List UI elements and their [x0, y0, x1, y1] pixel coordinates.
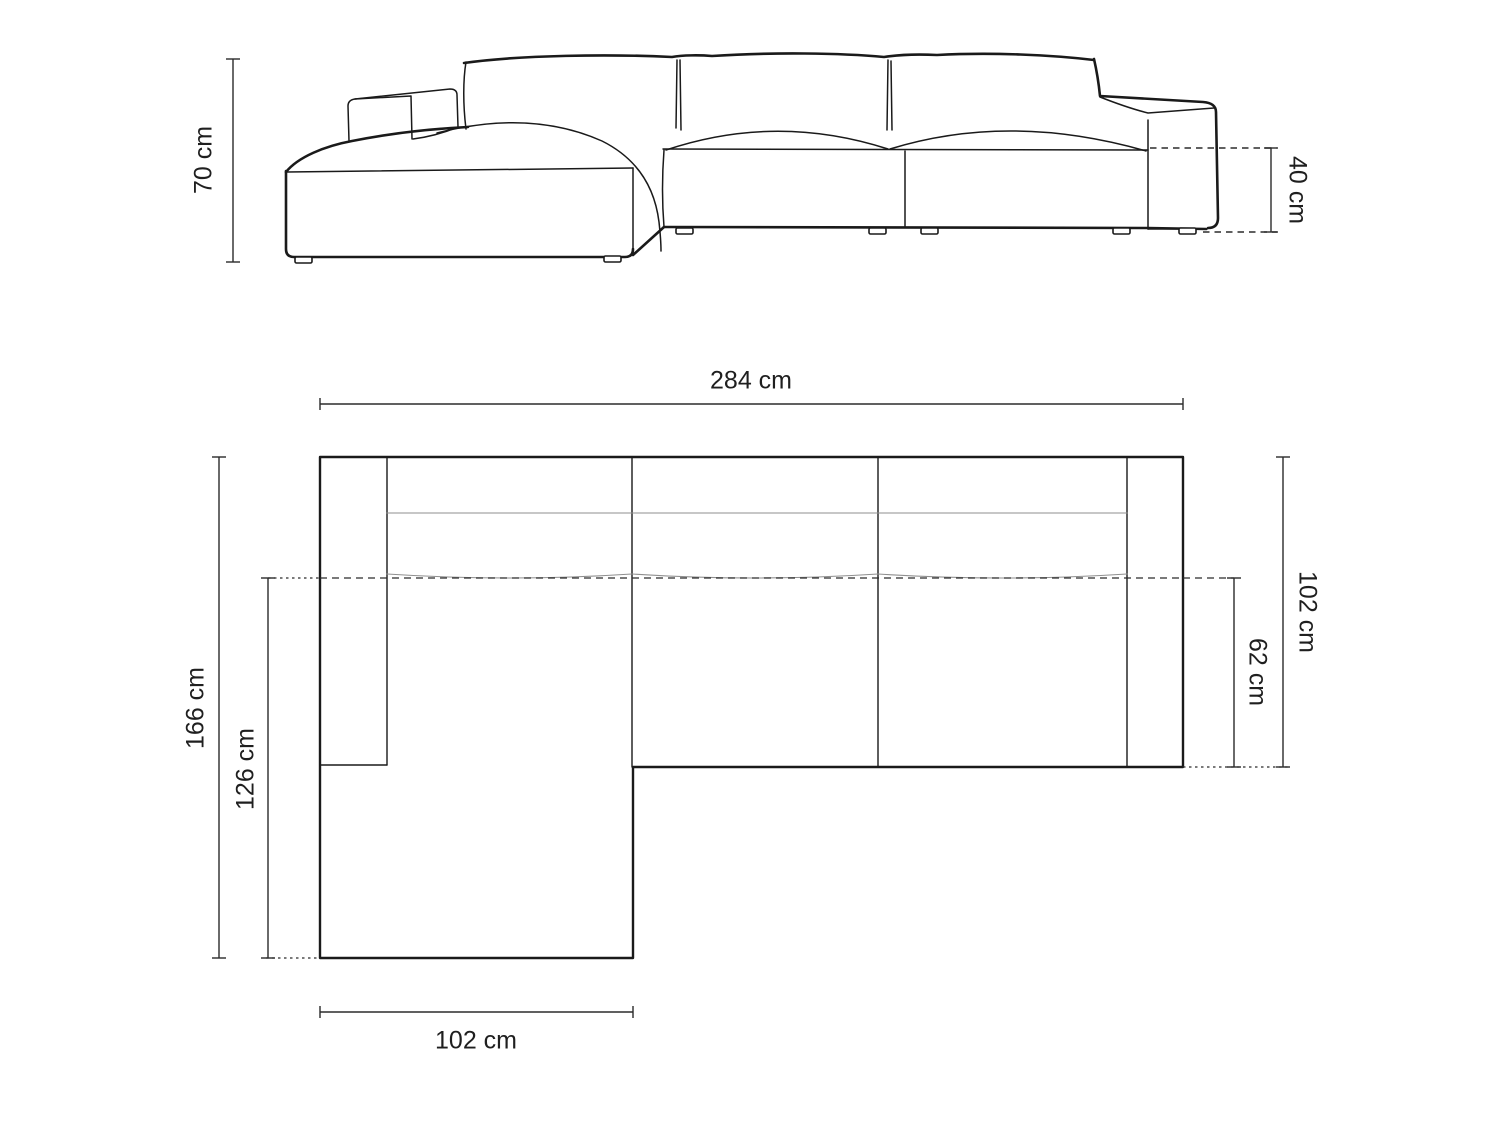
- plan-seat-depth-label: 62 cm: [1245, 638, 1270, 706]
- seat-depth-62-dim-line: [1227, 578, 1241, 767]
- sofa-dimension-diagram: 70 cm 40 cm 284 cm 166 cm 126 cm 102 cm …: [0, 0, 1500, 1125]
- plan-total-width-label: 284 cm: [710, 369, 792, 394]
- plan-cushion-lines: [387, 513, 1127, 578]
- chaise-extent-126-dim-line: [261, 578, 275, 958]
- diagram-linework: [0, 0, 1500, 1125]
- plan-outline: [320, 457, 1183, 958]
- elevation-seams: [287, 60, 1214, 251]
- chaise-width-102-dim-line: [320, 1006, 633, 1018]
- width-284-dim-line: [320, 398, 1183, 410]
- seat-height-40-dim-line: [1150, 148, 1278, 232]
- front-height-label: 70 cm: [192, 126, 217, 194]
- body-depth-102-dim-line: [1276, 457, 1290, 767]
- height-70-dim-line: [226, 59, 240, 262]
- front-seat-height-label: 40 cm: [1285, 156, 1310, 224]
- depth-166-dim-line: [212, 457, 226, 958]
- plan-seams: [320, 457, 1127, 767]
- elevation-silhouette: [286, 53, 1218, 257]
- plan-chaise-width-label: 102 cm: [435, 1029, 517, 1054]
- top-plan-drawing: [320, 457, 1183, 958]
- plan-total-depth-label: 166 cm: [184, 667, 209, 749]
- front-elevation-drawing: [286, 53, 1218, 263]
- plan-chaise-extent-label: 126 cm: [234, 728, 259, 810]
- plan-body-depth-label: 102 cm: [1295, 571, 1320, 653]
- top-plan-dimension-lines: [212, 398, 1290, 1018]
